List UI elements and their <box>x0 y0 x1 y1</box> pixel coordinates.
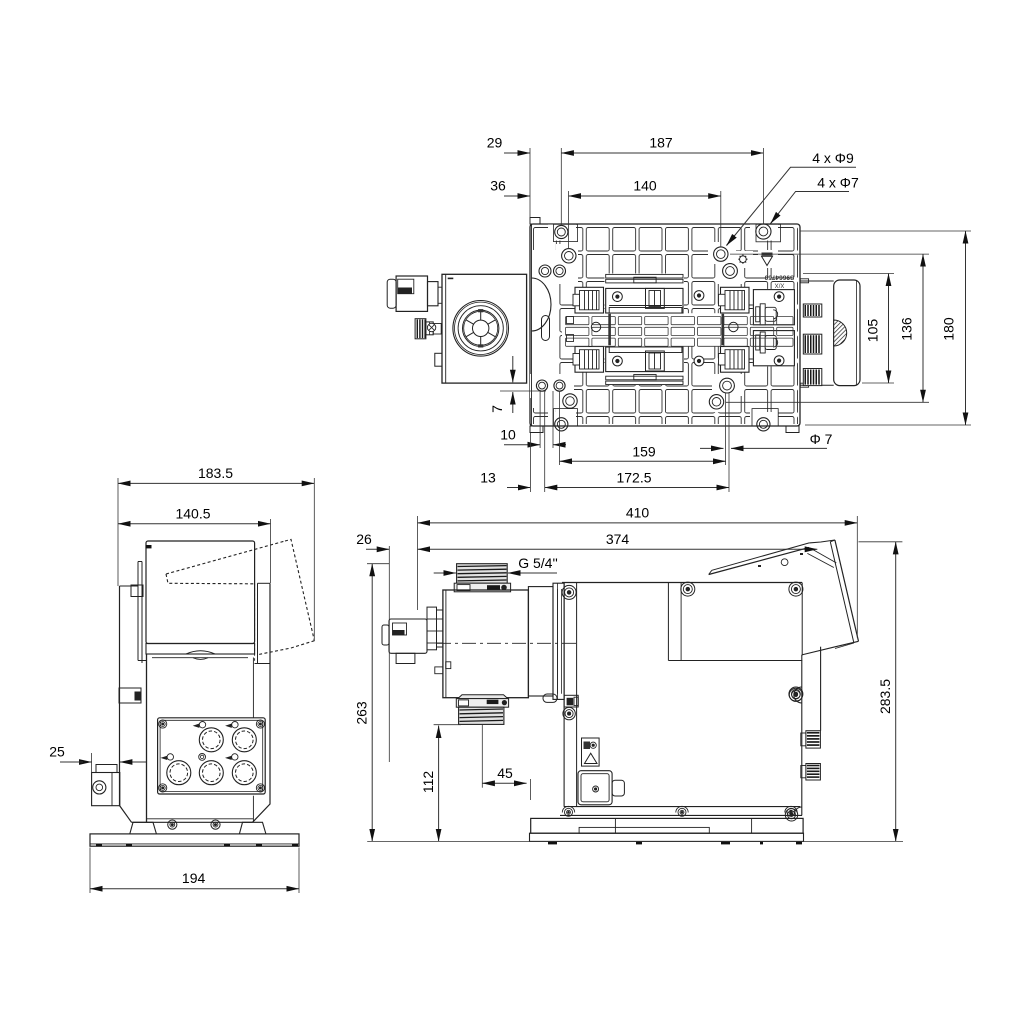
svg-text:29: 29 <box>487 135 503 151</box>
svg-text:180: 180 <box>941 317 957 341</box>
svg-text:112: 112 <box>420 771 436 794</box>
svg-text:105: 105 <box>865 319 881 343</box>
svg-text:283.5: 283.5 <box>877 679 893 714</box>
svg-text:4 x Φ9: 4 x Φ9 <box>812 150 854 166</box>
svg-text:159: 159 <box>632 443 656 459</box>
svg-text:374: 374 <box>606 531 630 547</box>
svg-text:36: 36 <box>490 178 506 194</box>
svg-text:26: 26 <box>356 531 372 547</box>
svg-text:140: 140 <box>633 178 657 194</box>
svg-text:10: 10 <box>500 427 516 443</box>
svg-text:187: 187 <box>649 135 673 151</box>
svg-text:194: 194 <box>182 870 206 886</box>
svg-text:140.5: 140.5 <box>175 505 210 521</box>
svg-text:410: 410 <box>626 504 650 520</box>
svg-text:136: 136 <box>899 317 915 341</box>
svg-text:X/X: X/X <box>775 282 785 288</box>
svg-text:25: 25 <box>49 744 65 760</box>
svg-text:7: 7 <box>489 405 505 413</box>
svg-text:4 x Φ7: 4 x Φ7 <box>817 175 859 191</box>
svg-text:183.5: 183.5 <box>198 465 233 481</box>
svg-text:45: 45 <box>497 765 513 781</box>
svg-text:S9664750: S9664750 <box>764 274 794 281</box>
svg-text:263: 263 <box>354 701 370 725</box>
svg-text:13: 13 <box>480 470 496 486</box>
svg-text:G 5/4'': G 5/4'' <box>518 555 558 571</box>
svg-text:172.5: 172.5 <box>616 470 651 486</box>
svg-text:Φ 7: Φ 7 <box>810 431 833 447</box>
